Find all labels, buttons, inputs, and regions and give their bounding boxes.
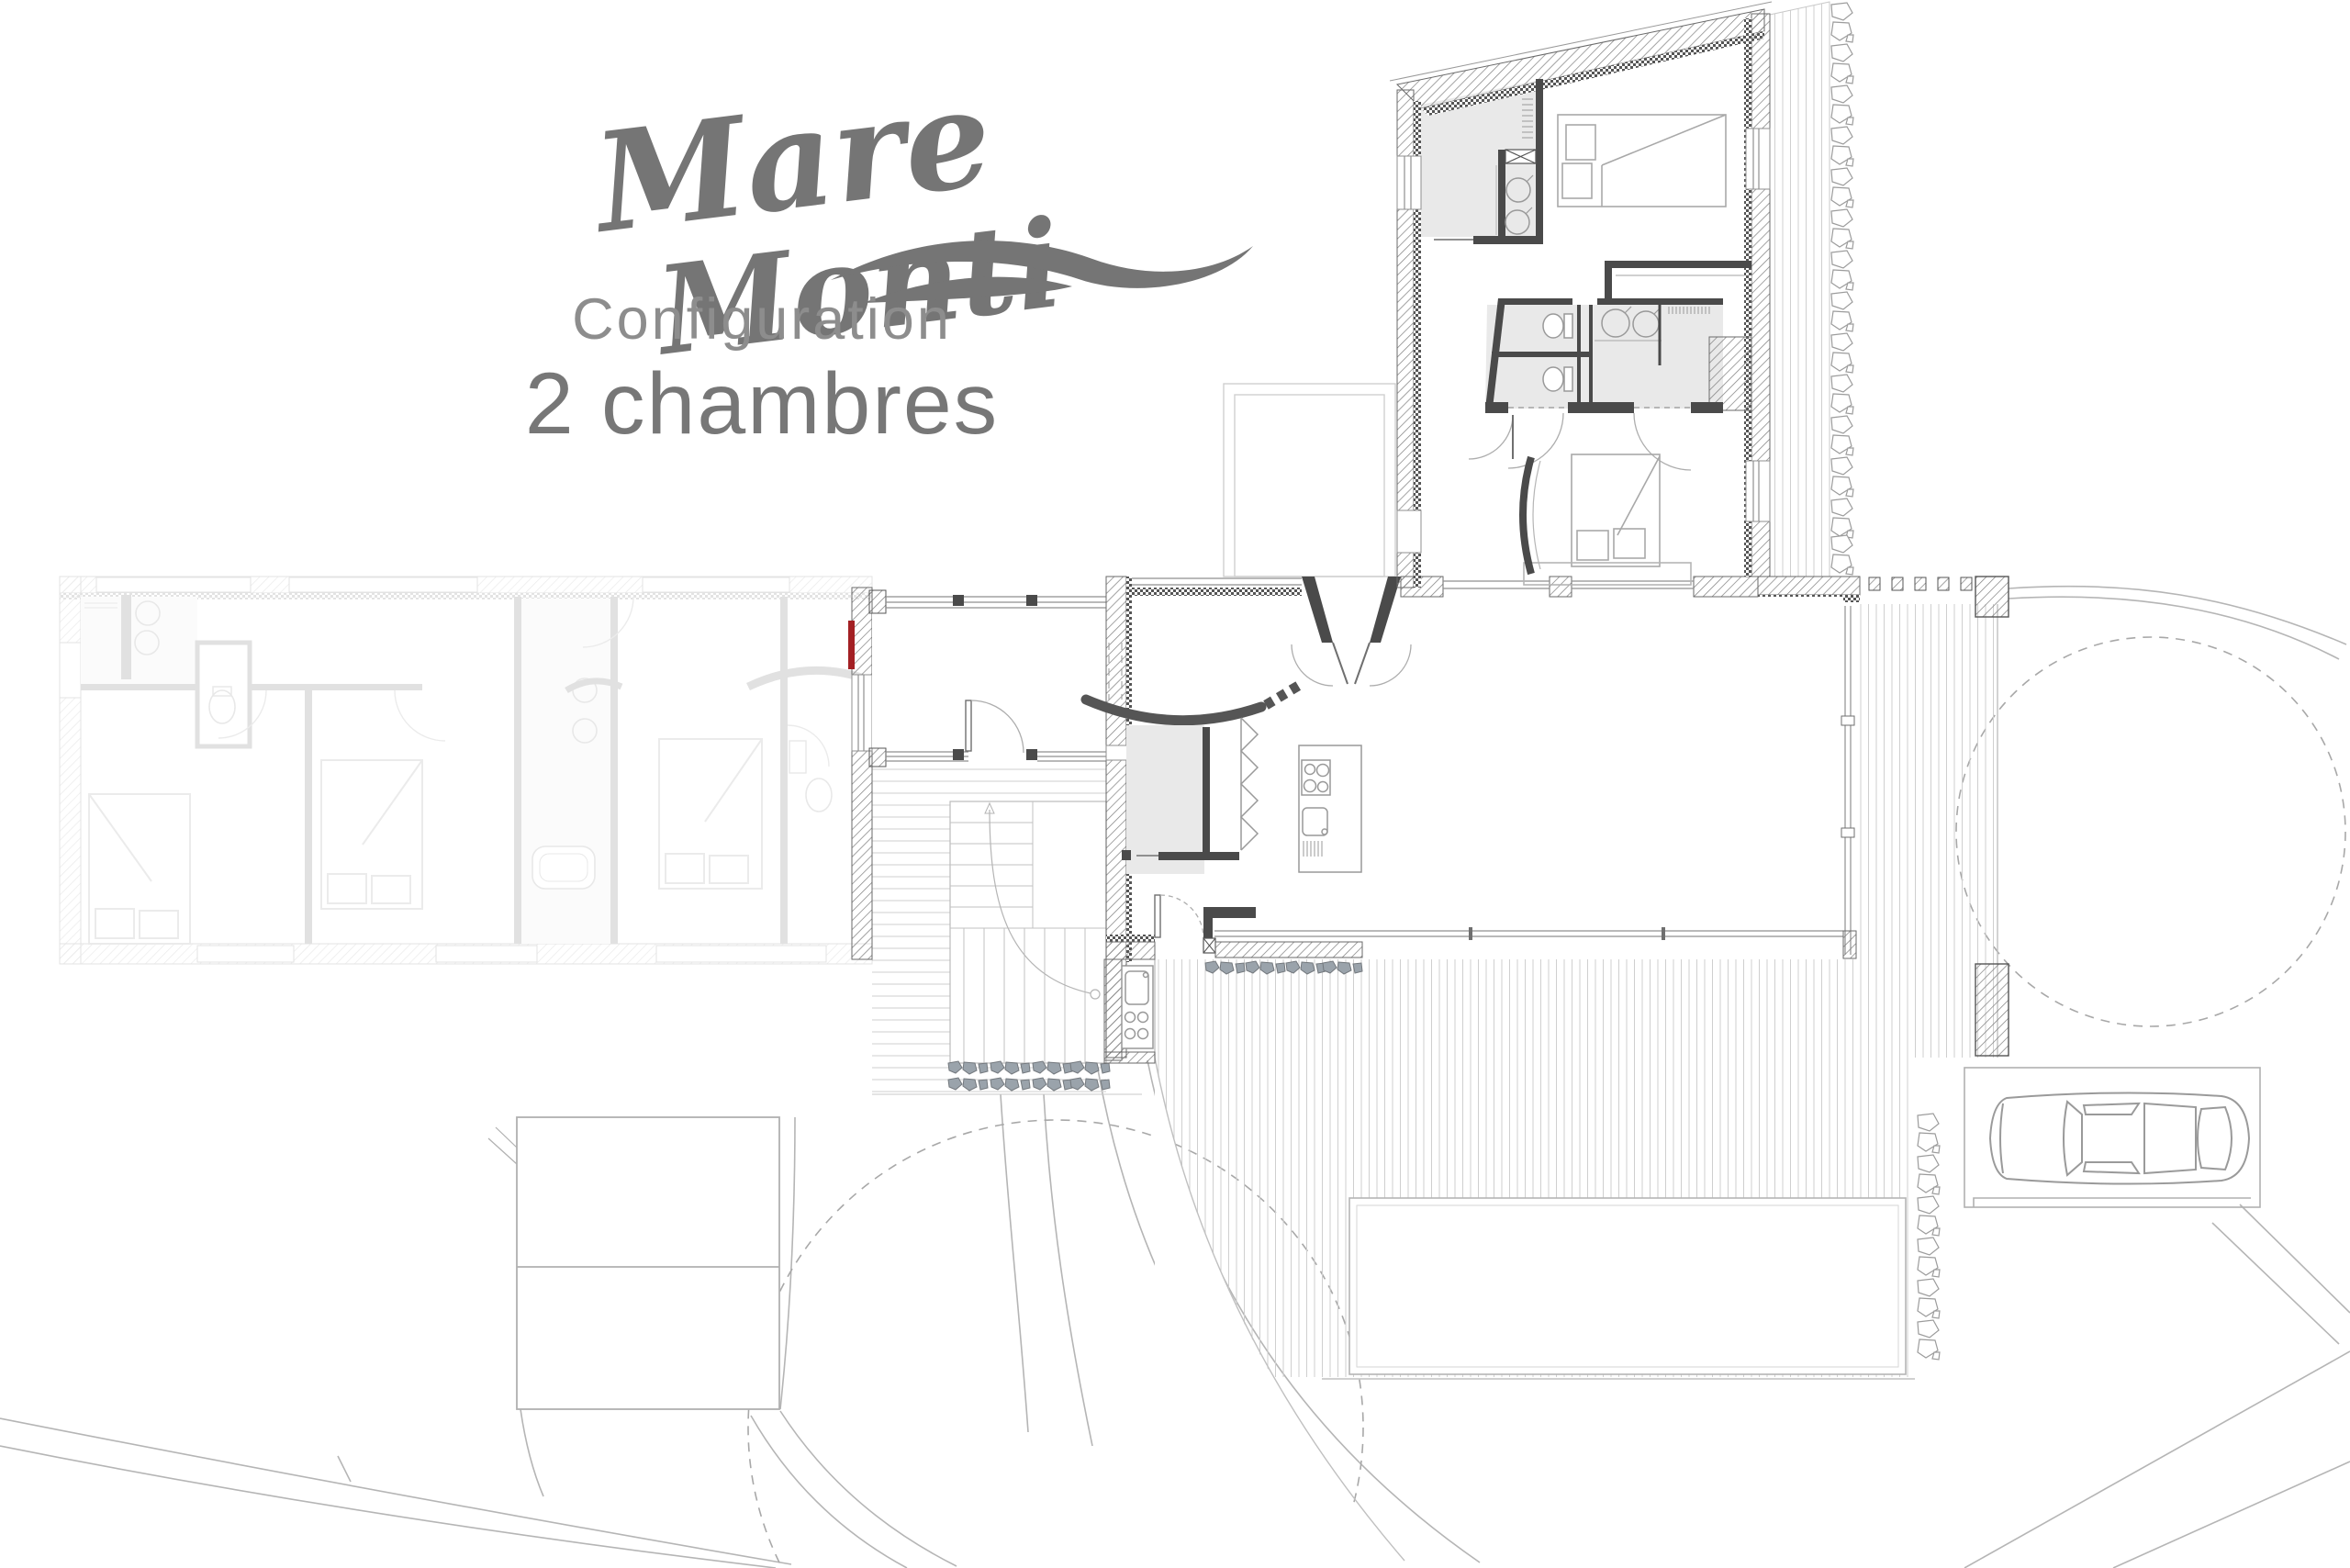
tree-canopy (1956, 637, 2345, 1026)
toilet-icon (1543, 367, 1572, 391)
bed (1572, 454, 1660, 566)
faded-wing (60, 577, 872, 964)
bedroom-1 (1558, 115, 1726, 207)
deck-pillar (1975, 964, 2009, 1056)
floor-plan-page: Mare Monti Configuration 2 chambres (0, 0, 2350, 1568)
driveway-edge (2009, 587, 2346, 644)
garden-path (520, 1409, 543, 1496)
stone-path-southeast (1918, 1114, 1940, 1360)
contour-line (2113, 1462, 2350, 1568)
bed (1558, 115, 1726, 207)
link-corridor (869, 590, 1106, 767)
duct-shaft (1505, 150, 1536, 163)
stairs-path (1001, 1094, 1028, 1432)
pool-terrace (1349, 1198, 1906, 1374)
configuration-subtitle: Configuration (496, 286, 1028, 353)
driveway-edge (2009, 597, 2339, 659)
garden-path (780, 1411, 957, 1566)
slanted-wall (1397, 9, 1764, 108)
road-edge (0, 1446, 776, 1568)
car (1990, 1092, 2249, 1183)
bedroom-2 (1469, 415, 1691, 585)
road-edge (0, 1418, 791, 1564)
mullion-post (1203, 938, 1215, 953)
wall-jog (1709, 337, 1751, 410)
garden-shed (488, 1117, 779, 1409)
deck-north-band (1770, 2, 1830, 577)
exterior-stairs (950, 801, 1106, 1063)
outdoor-kitchen (1104, 959, 1155, 1063)
contour-line (1964, 1351, 2350, 1568)
red-section-marker (848, 621, 855, 669)
curved-closet-wall (1523, 457, 1531, 574)
dressing-wall (1605, 261, 1751, 303)
patio-outline (1224, 384, 1395, 577)
garden-path (751, 1416, 907, 1568)
garden-path (780, 1117, 795, 1409)
stairs-path (1044, 1094, 1092, 1446)
variant-title: 2 chambres (477, 354, 1046, 454)
bedroom-wing (1390, 2, 1772, 588)
wing-junction-wall (848, 588, 872, 959)
deck-pillar (1975, 577, 2009, 617)
driveway-edge (2240, 1204, 2350, 1313)
toilet-icon (1543, 314, 1572, 338)
stone-path-east (1831, 3, 1853, 575)
